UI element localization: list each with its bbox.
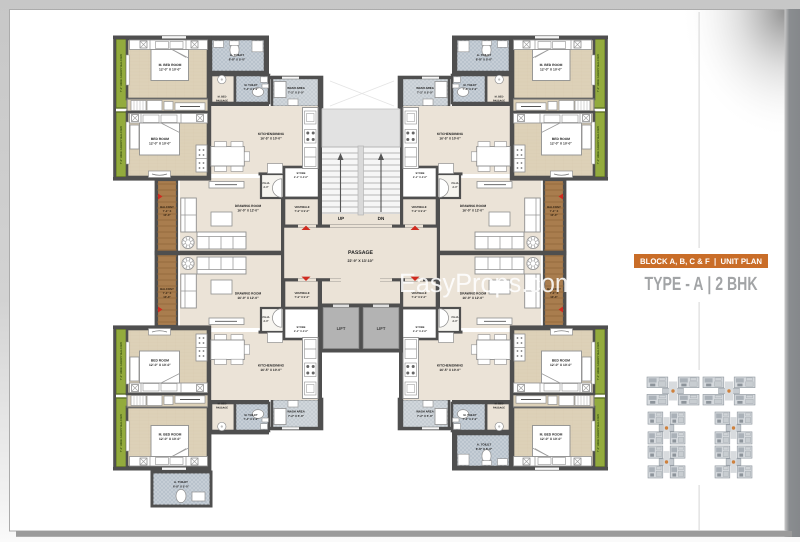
svg-text:KITCHEN/DINING: KITCHEN/DINING	[437, 363, 464, 367]
svg-text:7'-4" X 3'-9": 7'-4" X 3'-9"	[244, 88, 260, 91]
svg-text:7'-0" WIDE CANOPY BALCONY: 7'-0" WIDE CANOPY BALCONY	[597, 342, 600, 381]
svg-text:PASSAGE: PASSAGE	[216, 407, 228, 410]
svg-text:M. BED ROOM: M. BED ROOM	[159, 432, 182, 436]
svg-text:M. BED ROOM: M. BED ROOM	[159, 63, 182, 67]
svg-text:DN: DN	[378, 216, 385, 221]
svg-text:BED ROOM: BED ROOM	[552, 137, 570, 141]
svg-text:12'-0" X 10'-0": 12'-0" X 10'-0"	[149, 142, 171, 146]
svg-text:6'-8" X 5'-0": 6'-8" X 5'-0"	[476, 57, 493, 61]
svg-text:12'-0" X 10'-0": 12'-0" X 10'-0"	[159, 437, 181, 441]
svg-text:BED ROOM: BED ROOM	[151, 137, 169, 141]
svg-text:BLOCK A, B, C & F | UNIT PLA: BLOCK A, B, C & F | UNIT PLAN	[640, 257, 762, 266]
svg-text:M. BED ROOM: M. BED ROOM	[540, 63, 563, 67]
svg-text:4'-1" X 4'-0": 4'-1" X 4'-0"	[294, 176, 309, 179]
svg-text:M. BED: M. BED	[218, 403, 227, 406]
svg-text:16'-5" X 10'-0": 16'-5" X 10'-0"	[260, 137, 282, 141]
svg-text:4'-1" X 4'-0": 4'-1" X 4'-0"	[413, 330, 428, 333]
svg-text:7'-0" WIDE CANOPY BALCONY: 7'-0" WIDE CANOPY BALCONY	[120, 54, 123, 93]
svg-text:KITCHEN/DINING: KITCHEN/DINING	[258, 132, 285, 136]
svg-text:12'-0" X 10'-0": 12'-0" X 10'-0"	[550, 363, 572, 367]
svg-text:PASSAGE: PASSAGE	[493, 407, 505, 410]
svg-text:PASSAGE: PASSAGE	[216, 99, 228, 102]
svg-text:BED ROOM: BED ROOM	[151, 358, 169, 362]
svg-text:M. BED: M. BED	[218, 96, 227, 99]
svg-text:7'-4" X 3'-9": 7'-4" X 3'-9"	[244, 418, 260, 421]
svg-text:STORE: STORE	[297, 326, 306, 329]
svg-text:M. BED ROOM: M. BED ROOM	[540, 432, 563, 436]
svg-text:VESTIBULE: VESTIBULE	[294, 292, 309, 295]
svg-text:6'-8" X 5'-0": 6'-8" X 5'-0"	[173, 484, 190, 488]
svg-text:7'-0" WIDE CANOPY BALCONY: 7'-0" WIDE CANOPY BALCONY	[120, 342, 123, 381]
svg-text:16'-0" X 12'-0": 16'-0" X 12'-0"	[237, 296, 259, 300]
svg-text:LIFT: LIFT	[377, 326, 386, 331]
svg-text:12'-0" X 10'-0": 12'-0" X 10'-0"	[149, 363, 171, 367]
svg-text:M. TOILET: M. TOILET	[463, 414, 477, 417]
svg-text:A. TOILET: A. TOILET	[477, 53, 492, 57]
svg-text:7'-6" X 5'-0": 7'-6" X 5'-0"	[412, 210, 428, 213]
svg-text:4'-1" X 4'-0": 4'-1" X 4'-0"	[413, 176, 428, 179]
svg-text:4'-1" X 4'-0": 4'-1" X 4'-0"	[294, 330, 309, 333]
svg-text:STORE: STORE	[297, 172, 306, 175]
svg-text:M. TOILET: M. TOILET	[244, 84, 258, 87]
svg-text:BED ROOM: BED ROOM	[552, 358, 570, 362]
svg-text:PUJA: PUJA	[452, 182, 459, 185]
svg-text:4'-0": 4'-0"	[263, 320, 269, 323]
svg-text:LIFT: LIFT	[337, 326, 346, 331]
svg-text:TYPE - A | 2 BHK: TYPE - A | 2 BHK	[645, 274, 758, 295]
svg-text:PASSAGE: PASSAGE	[348, 250, 374, 256]
svg-text:M. BED: M. BED	[495, 403, 504, 406]
svg-text:10'-0": 10'-0"	[163, 295, 171, 299]
svg-text:4'-0": 4'-0"	[263, 186, 269, 189]
svg-text:M. TOILET: M. TOILET	[463, 84, 477, 87]
svg-text:7'-2" X 5'-9": 7'-2" X 5'-9"	[288, 90, 305, 94]
svg-text:PASSAGE: PASSAGE	[493, 99, 505, 102]
svg-text:16'-0" X 12'-0": 16'-0" X 12'-0"	[462, 209, 484, 213]
svg-text:A. TOILET: A. TOILET	[477, 443, 492, 447]
svg-text:12'-0" X 10'-0": 12'-0" X 10'-0"	[540, 437, 562, 441]
svg-text:7'-2" X 5'-9": 7'-2" X 5'-9"	[417, 414, 434, 418]
svg-text:4'-0": 4'-0"	[452, 320, 458, 323]
svg-text:STORE: STORE	[416, 172, 425, 175]
svg-text:10'-0": 10'-0"	[550, 213, 558, 217]
svg-text:16'-5" X 10'-0": 16'-5" X 10'-0"	[439, 368, 461, 372]
svg-text:7'-6" X 5'-0": 7'-6" X 5'-0"	[295, 296, 311, 299]
svg-text:PUJA: PUJA	[263, 316, 270, 319]
svg-text:DRAWING ROOM: DRAWING ROOM	[235, 291, 262, 295]
svg-text:12'-0" X 10'-0": 12'-0" X 10'-0"	[540, 68, 562, 72]
svg-text:EasyProps.com: EasyProps.com	[399, 268, 576, 298]
svg-text:DRAWING ROOM: DRAWING ROOM	[460, 204, 487, 208]
svg-text:7'-0" WIDE CANOPY BALCONY: 7'-0" WIDE CANOPY BALCONY	[120, 414, 123, 453]
svg-text:22'-9" X 13'-10": 22'-9" X 13'-10"	[348, 259, 374, 263]
svg-text:16'-5" X 10'-0": 16'-5" X 10'-0"	[439, 137, 461, 141]
svg-text:6'-8" X 5'-0": 6'-8" X 5'-0"	[229, 57, 246, 61]
svg-text:12'-0" X 10'-0": 12'-0" X 10'-0"	[550, 142, 572, 146]
svg-text:DRAWING ROOM: DRAWING ROOM	[235, 204, 262, 208]
svg-text:12'-0" X 10'-0": 12'-0" X 10'-0"	[159, 68, 181, 72]
svg-text:7'-2" X 5'-9": 7'-2" X 5'-9"	[288, 414, 305, 418]
svg-text:16'-0" X 12'-0": 16'-0" X 12'-0"	[237, 209, 259, 213]
svg-text:KITCHEN/DINING: KITCHEN/DINING	[258, 363, 285, 367]
svg-text:7'-6" X 5'-0": 7'-6" X 5'-0"	[295, 210, 311, 213]
svg-text:7'-4" X 3'-9": 7'-4" X 3'-9"	[463, 88, 479, 91]
svg-text:7'-0" WIDE CANOPY BALCONY: 7'-0" WIDE CANOPY BALCONY	[120, 126, 123, 165]
svg-text:VESTIBULE: VESTIBULE	[411, 206, 426, 209]
svg-text:PUJA: PUJA	[452, 316, 459, 319]
svg-text:10'-0": 10'-0"	[163, 213, 171, 217]
svg-text:M. TOILET: M. TOILET	[244, 414, 258, 417]
svg-text:7'-4" X 3'-9": 7'-4" X 3'-9"	[463, 418, 479, 421]
svg-text:4'-0": 4'-0"	[452, 186, 458, 189]
svg-text:16'-5" X 10'-0": 16'-5" X 10'-0"	[260, 368, 282, 372]
svg-text:UP: UP	[338, 216, 344, 221]
svg-text:6'-8" X 5'-0": 6'-8" X 5'-0"	[476, 447, 493, 451]
svg-text:7'-2" X 5'-9": 7'-2" X 5'-9"	[417, 90, 434, 94]
svg-text:M. BED: M. BED	[495, 96, 504, 99]
svg-text:STORE: STORE	[416, 326, 425, 329]
svg-text:VESTIBULE: VESTIBULE	[294, 206, 309, 209]
svg-text:7'-0" WIDE CANOPY BALCONY: 7'-0" WIDE CANOPY BALCONY	[597, 54, 600, 93]
svg-text:PUJA: PUJA	[263, 182, 270, 185]
svg-text:KITCHEN/DINING: KITCHEN/DINING	[437, 132, 464, 136]
svg-text:7'-0" WIDE CANOPY BALCONY: 7'-0" WIDE CANOPY BALCONY	[597, 414, 600, 453]
svg-text:7'-0" WIDE CANOPY BALCONY: 7'-0" WIDE CANOPY BALCONY	[597, 126, 600, 165]
svg-text:A. TOILET: A. TOILET	[230, 53, 245, 57]
